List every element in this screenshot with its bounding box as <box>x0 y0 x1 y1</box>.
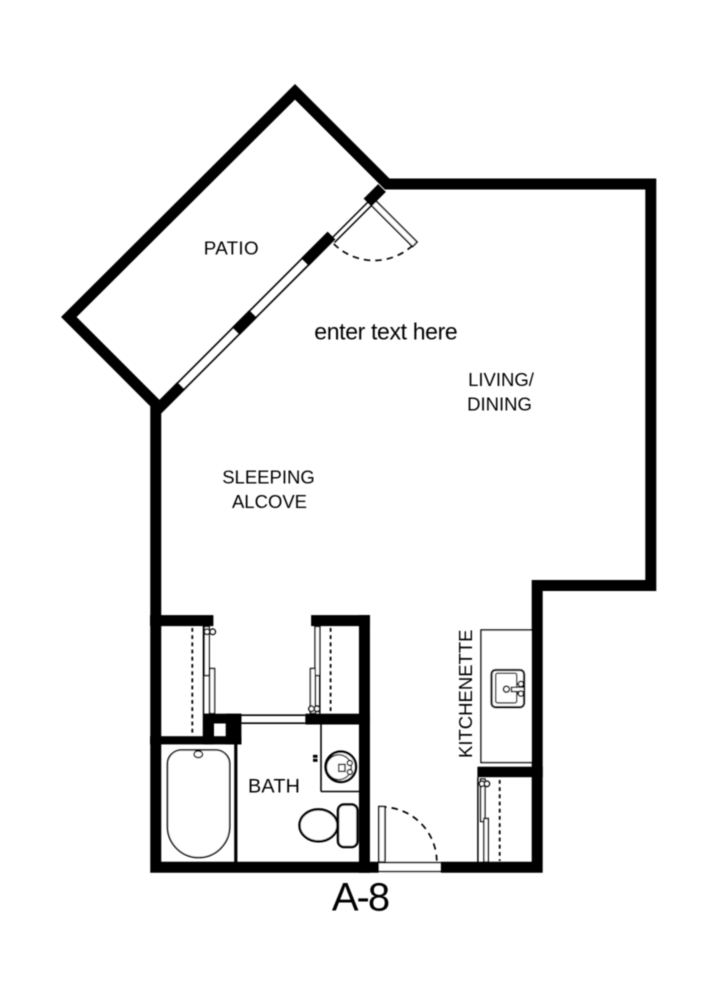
svg-text:A-8: A-8 <box>332 876 389 920</box>
svg-text:SLEEPING: SLEEPING <box>222 467 315 488</box>
svg-text:DINING: DINING <box>467 393 532 414</box>
svg-text:BATH: BATH <box>248 776 300 798</box>
svg-text:PATIO: PATIO <box>204 238 259 259</box>
svg-text:LIVING/: LIVING/ <box>468 369 535 390</box>
svg-text:KITCHENETTE: KITCHENETTE <box>455 630 476 758</box>
svg-text:enter text here: enter text here <box>314 319 457 345</box>
svg-text:ALCOVE: ALCOVE <box>232 491 307 512</box>
